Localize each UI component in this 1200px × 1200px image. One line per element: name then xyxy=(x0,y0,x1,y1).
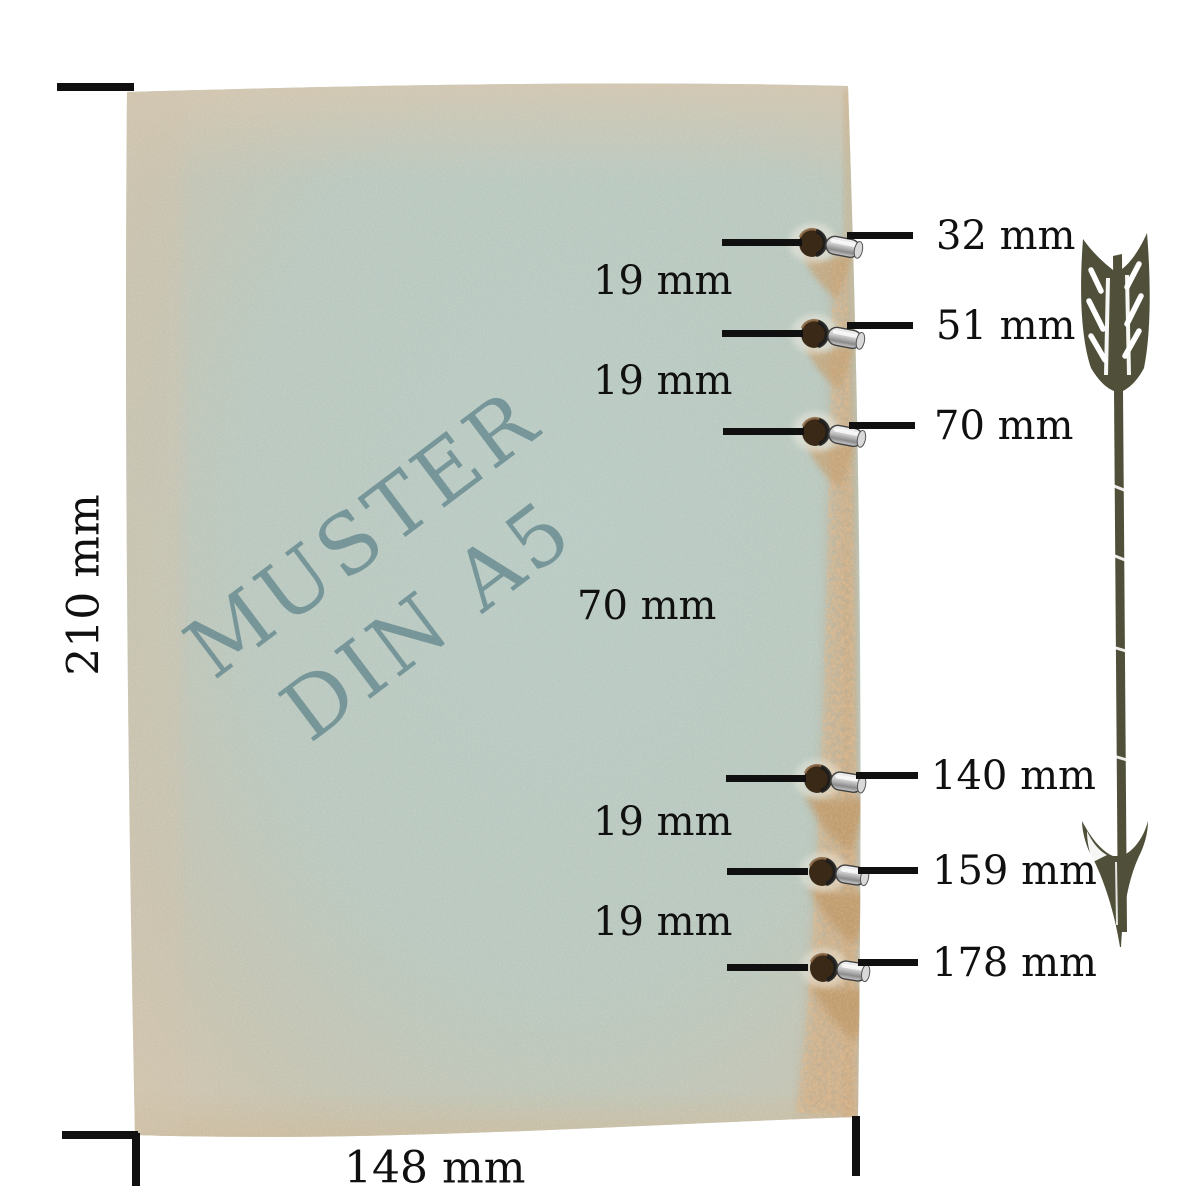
hole-position-label-1: 32 mm xyxy=(936,213,1075,259)
dimension-line-left-5 xyxy=(727,868,808,875)
dimension-line-right-2 xyxy=(847,322,913,329)
dimension-line-left-2 xyxy=(722,330,803,337)
hole-position-label-2: 51 mm xyxy=(936,303,1075,349)
hole-gap-label-3: 70 mm xyxy=(577,583,716,629)
hole-gap-label-1: 19 mm xyxy=(593,258,732,304)
height-tick-bottom xyxy=(62,1131,138,1139)
height-tick-top xyxy=(57,83,134,91)
hole-position-label-3: 70 mm xyxy=(934,403,1073,449)
hole-position-label-6: 178 mm xyxy=(932,940,1097,986)
dimension-line-left-4 xyxy=(726,775,806,782)
dimension-line-right-5 xyxy=(858,867,918,874)
width-tick-left xyxy=(132,1133,140,1186)
dimension-line-right-1 xyxy=(847,232,913,239)
product-diagram: MUSTER DIN A5 32 mm 51 mm 70 mm 140 mm 1… xyxy=(0,0,1200,1200)
hole-position-label-4: 140 mm xyxy=(931,753,1096,799)
hole-gap-label-5: 19 mm xyxy=(593,899,732,945)
hole-gap-label-4: 19 mm xyxy=(593,799,732,845)
sheet-width-label: 148 mm xyxy=(344,1143,525,1194)
dimension-line-right-3 xyxy=(849,422,915,429)
dimension-line-left-1 xyxy=(722,239,802,246)
binding-hole-6 xyxy=(800,948,871,988)
dimension-line-right-6 xyxy=(858,959,918,966)
width-tick-right xyxy=(852,1116,860,1176)
hole-gap-label-2: 19 mm xyxy=(593,358,732,404)
dimension-line-left-3 xyxy=(723,428,804,435)
sheet-height-label: 210 mm xyxy=(59,494,110,675)
feathered-arrow-down-icon xyxy=(1081,233,1150,947)
dimension-line-left-6 xyxy=(727,964,808,971)
dimension-line-right-4 xyxy=(856,772,918,779)
hole-position-label-5: 159 mm xyxy=(932,848,1097,894)
